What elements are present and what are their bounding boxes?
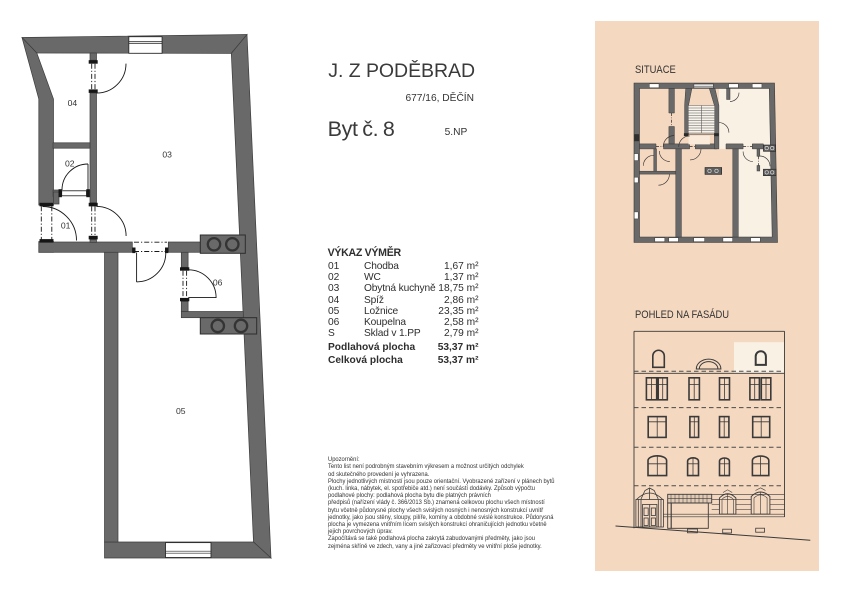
svg-text:02: 02 (65, 159, 75, 169)
svg-text:03: 03 (162, 150, 172, 160)
svg-text:05: 05 (176, 406, 186, 416)
svg-text:01: 01 (61, 221, 71, 231)
svg-text:04: 04 (68, 98, 78, 108)
svg-text:06: 06 (213, 278, 223, 288)
